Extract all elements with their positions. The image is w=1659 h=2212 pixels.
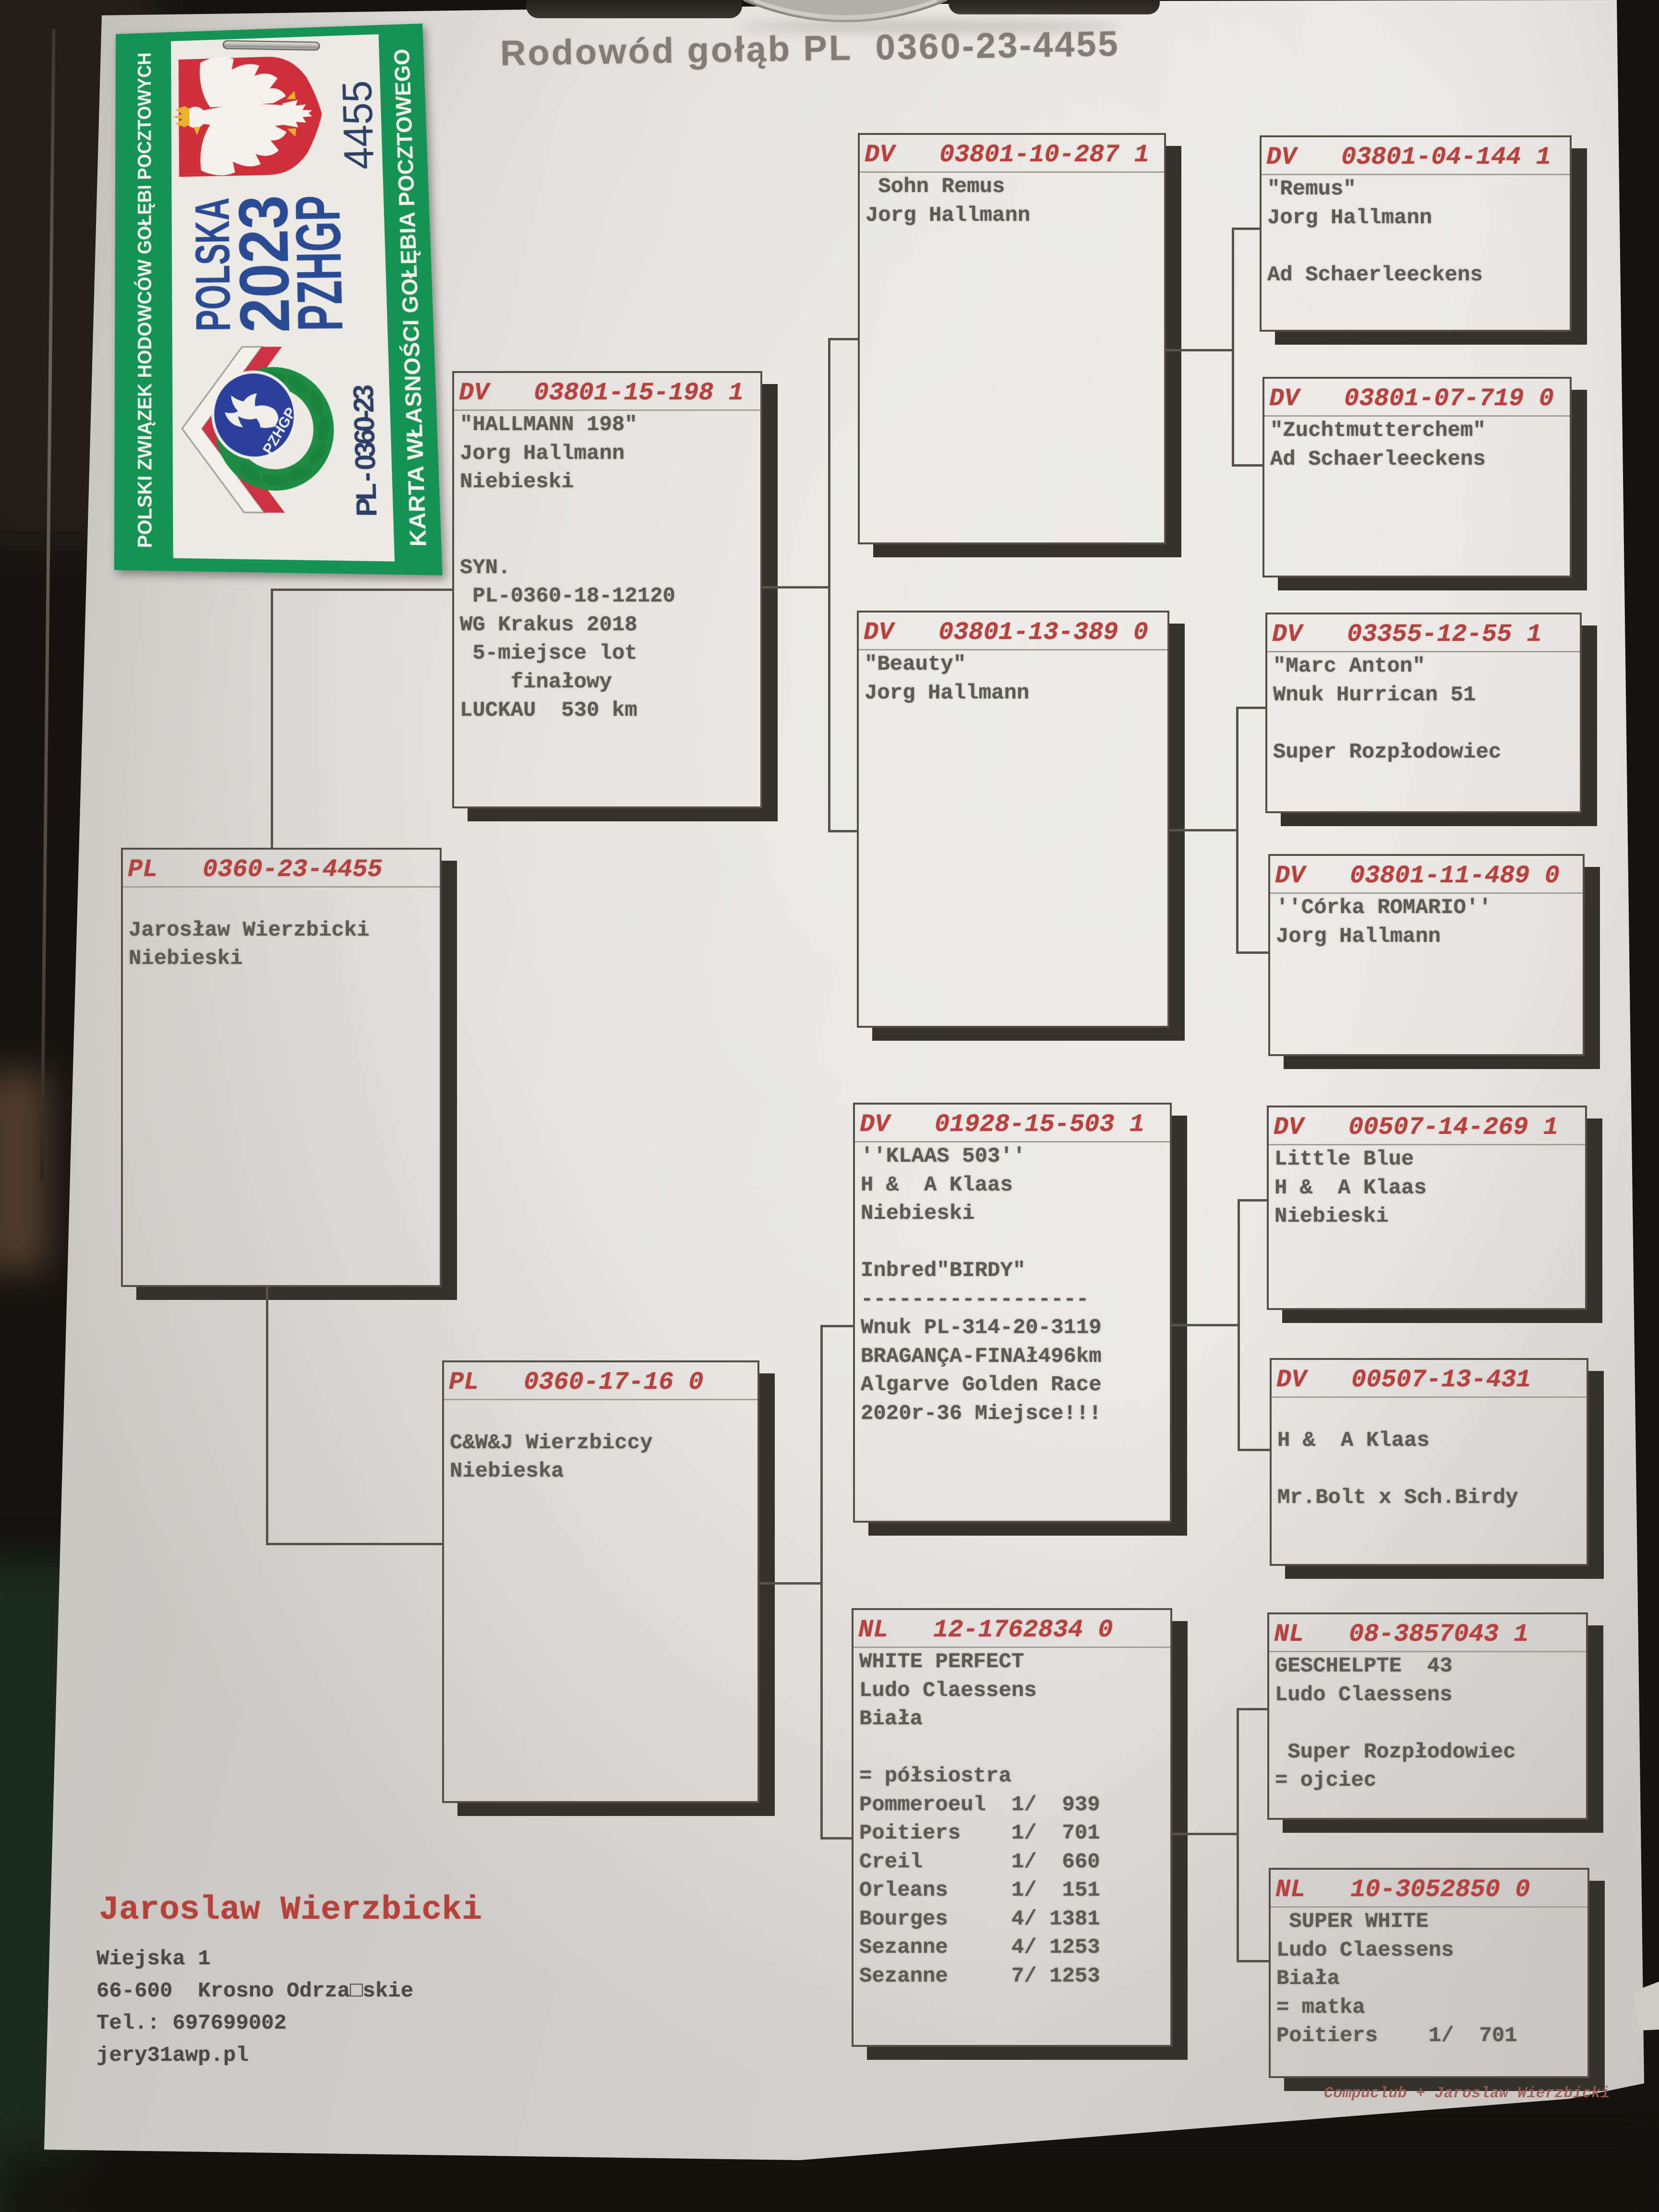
svg-text:PZHGP: PZHGP [282, 195, 356, 332]
svg-text:PL - 0360-23: PL - 0360-23 [348, 385, 383, 517]
svg-text:4455: 4455 [334, 80, 383, 170]
svg-text:POLSKI ZWIĄZEK HODOWCÓW GOŁĘBI: POLSKI ZWIĄZEK HODOWCÓW GOŁĘBI POCZTOWYC… [133, 52, 156, 548]
